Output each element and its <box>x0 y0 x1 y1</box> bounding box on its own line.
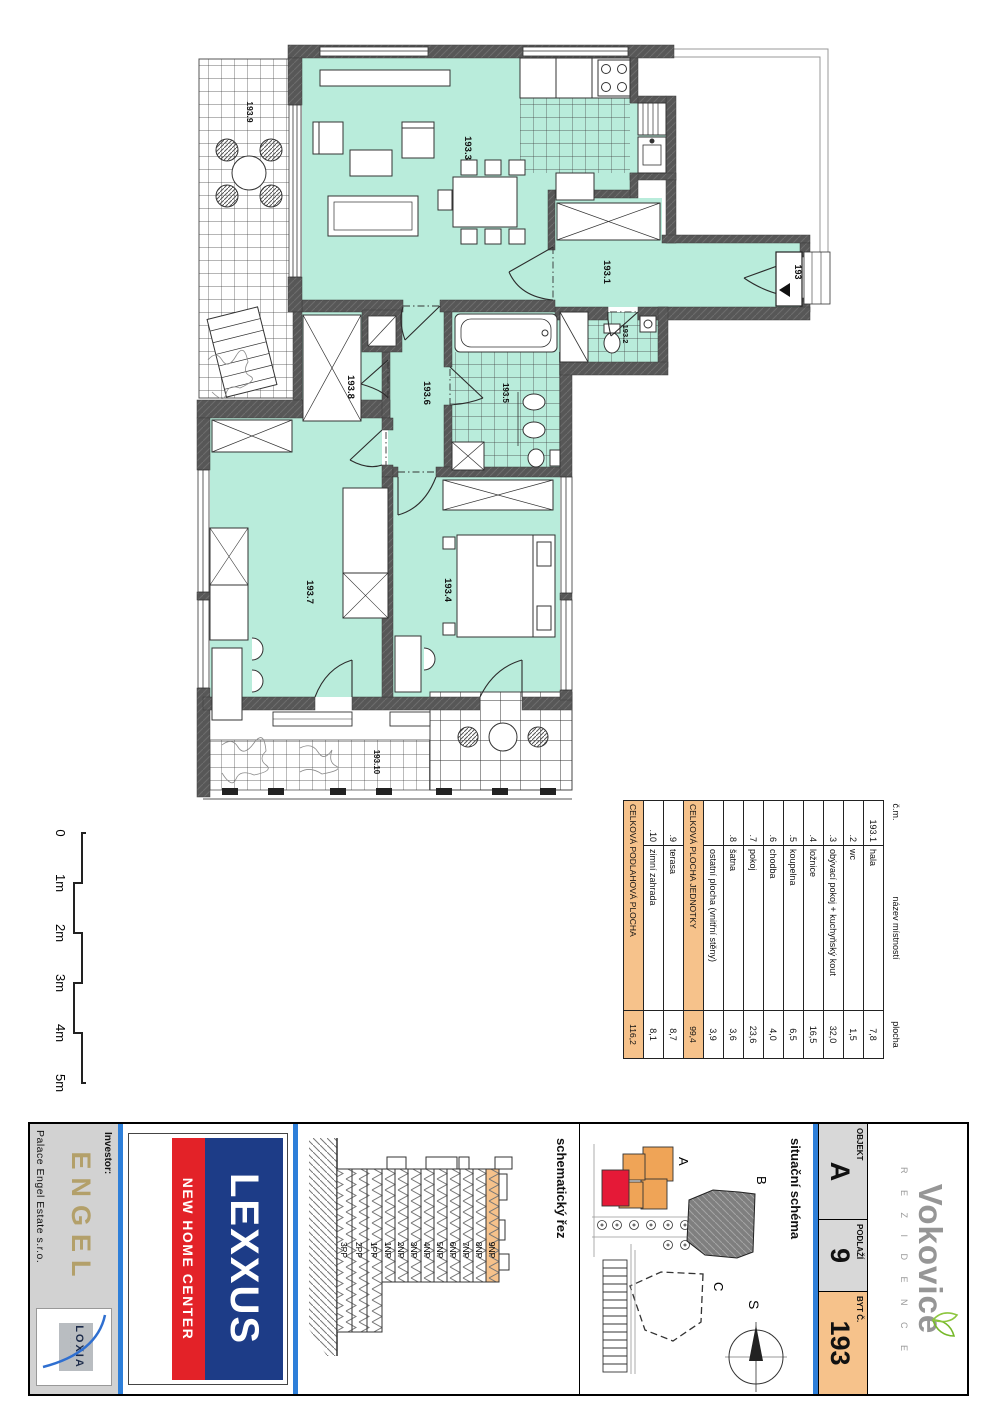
room-label-closet: 193.8 <box>345 375 356 399</box>
table-header-row: č.m. název místností plocha <box>884 801 909 1059</box>
cell-num: .2 <box>844 801 864 846</box>
sink-icon <box>523 422 545 438</box>
room-label-bedroom1: 193.4 <box>442 578 453 602</box>
id-cell-byt: BYT Č. 193 <box>819 1292 867 1394</box>
table-row-total-floor: CELKOVÁ PODLAHOVÁ PLOCHA116,2 <box>624 801 644 1059</box>
hall-wardrobe <box>557 203 660 240</box>
site-scheme-section: situační schéma A <box>580 1124 813 1394</box>
toilet-icon <box>528 449 544 467</box>
building-a-label: A <box>676 1157 691 1166</box>
cell-area: 6,5 <box>784 1011 804 1059</box>
col-header-name: název místností <box>884 846 909 1011</box>
floor-label: 3NP <box>409 1242 419 1259</box>
site-unit-marker <box>602 1170 629 1206</box>
table-row: .5koupelna6,5 <box>784 801 804 1059</box>
lexxus-blank <box>133 1138 172 1380</box>
investor-company: Palace Engel Estate s.r.o. <box>34 1130 46 1263</box>
cell-area: 32,0 <box>824 1011 844 1059</box>
site-stairs <box>603 1244 635 1374</box>
scale-tick-label: 0 <box>53 829 68 836</box>
section-cut-drawing: 9NP 8NP 7NP 6NP 5NP 4NP 3NP 2NP 1NP 1PP … <box>299 1124 579 1394</box>
cell-name: pokoj <box>744 846 764 1011</box>
id-value: 193 <box>824 1292 855 1394</box>
site-trees <box>598 1221 690 1250</box>
room-label-bath: 193.5 <box>501 383 510 404</box>
threshold <box>390 712 430 726</box>
cell-area: 4,0 <box>764 1011 784 1059</box>
cell-name: zimní zahrada <box>644 846 664 1011</box>
id-label: PODLAŽÍ <box>855 1224 864 1259</box>
cell-area: 23,6 <box>744 1011 764 1059</box>
cell-area: 8,1 <box>644 1011 664 1059</box>
cell-name: ostatní plocha (vnitřní stěny) <box>704 846 724 1011</box>
cell-name: šatna <box>724 846 744 1011</box>
investor-block: Investor: ENGEL Palace Engel Estate s.r.… <box>30 1124 118 1394</box>
cell-total-label: CELKOVÁ PLOCHA JEDNOTKY <box>684 801 704 1011</box>
site-scheme-drawing: A B C <box>580 1124 813 1394</box>
floor-label: 8NP <box>474 1242 484 1259</box>
id-cell-objekt: OBJEKT A <box>819 1124 867 1220</box>
room-label-corridor: 193.6 <box>421 381 432 405</box>
room-label-wc: 193.2 <box>621 325 630 344</box>
engel-logo: ENGEL <box>65 1138 96 1298</box>
lexxus-name: LEXXUS <box>205 1138 283 1380</box>
scale-tick-label: 1m <box>53 874 68 892</box>
table-row: .8šatna3,6 <box>724 801 744 1059</box>
table-row: .10zimní zahrada8,1 <box>644 801 664 1059</box>
table-row-total-unit: CELKOVÁ PLOCHA JEDNOTKY99,4 <box>684 801 704 1059</box>
floor-label: 2NP <box>396 1242 406 1259</box>
loxia-swoosh <box>37 1309 111 1385</box>
page: { "plan": { "labels": { "r1": "193.1", "… <box>0 0 999 1414</box>
id-label: BYT Č. <box>855 1296 864 1322</box>
blue-divider <box>813 1124 818 1394</box>
site-building-a <box>602 1147 673 1209</box>
unit-number-label: 193 <box>793 264 803 279</box>
table-row: .4ložnice16,5 <box>804 801 824 1059</box>
id-label: OBJEKT <box>855 1128 864 1160</box>
col-header-area: plocha <box>884 1011 909 1059</box>
cell-name: terasa <box>664 846 684 1011</box>
table-row: ostatní plocha (vnitřní stěny)3,9 <box>704 801 724 1059</box>
floor-label: 3PP <box>339 1242 349 1258</box>
investor-label: Investor: <box>102 1132 113 1174</box>
scale-tick-label: 4m <box>53 1024 68 1042</box>
leaf-icon <box>931 1306 961 1340</box>
table-row: 193.1hala7,8 <box>864 801 884 1059</box>
site-building-c <box>630 1272 703 1341</box>
site-scheme-title: situační schéma <box>788 1138 803 1239</box>
lexxus-logo: LEXXUS NEW HOME CENTER <box>123 1124 293 1394</box>
floor-label: 1PP <box>369 1242 379 1258</box>
cell-area: 116,2 <box>624 1011 644 1059</box>
floor-labels: 9NP 8NP 7NP 6NP 5NP 4NP 3NP 2NP 1NP 1PP … <box>339 1242 497 1259</box>
cell-area: 3,9 <box>704 1011 724 1059</box>
cell-area: 7,8 <box>864 1011 884 1059</box>
patio-table-icon <box>489 723 517 751</box>
site-building-b <box>687 1190 755 1258</box>
loxia-logo: LOXIA· · · · · · · <box>36 1308 112 1386</box>
cell-area: 99,4 <box>684 1011 704 1059</box>
closet-wardrobe <box>303 315 361 421</box>
cell-name: obývací pokoj + kuchyňský kout <box>824 846 844 1011</box>
table-row: .3obývací pokoj + kuchyňský kout32,0 <box>824 801 844 1059</box>
floor-label: 9NP <box>487 1242 497 1259</box>
ground-hatch <box>309 1138 337 1356</box>
sink-icon <box>523 394 545 410</box>
vokovice-logo: Vokovice R E Z I D E N C E <box>867 1124 967 1394</box>
compass-icon <box>725 1322 787 1392</box>
floor-label: 7NP <box>461 1242 471 1259</box>
table-row: .7pokoj23,6 <box>744 801 764 1059</box>
scale-tick-label: 3m <box>53 974 68 992</box>
neighbor-outline <box>674 49 828 252</box>
scale-tick-label: 5m <box>53 1074 68 1092</box>
blue-divider <box>118 1124 123 1394</box>
scale-tick-label: 2m <box>53 924 68 942</box>
floor-label: 2PP <box>354 1242 364 1258</box>
compass-north-label: S <box>746 1300 762 1309</box>
cell-name: koupelna <box>784 846 804 1011</box>
floor-label: 6NP <box>448 1242 458 1259</box>
brand-name: Vokovice <box>911 1124 949 1394</box>
building-c-label: C <box>711 1282 726 1291</box>
brand-subtitle: R E Z I D E N C E <box>899 1131 909 1394</box>
cell-name: wc <box>844 846 864 1011</box>
room-label-wintergarden: 193.10 <box>372 750 381 775</box>
cell-num: 193.1 <box>864 801 884 846</box>
table-row: .2wc1,5 <box>844 801 864 1059</box>
cell-name: hala <box>864 846 884 1011</box>
id-value: A <box>824 1124 855 1219</box>
title-block: Vokovice R E Z I D E N C E OBJEKT A PODL… <box>28 1122 969 1396</box>
id-cell-podlazi: PODLAŽÍ 9 <box>819 1220 867 1292</box>
room-label-terrace: 193.9 <box>245 101 255 123</box>
cell-area: 1,5 <box>844 1011 864 1059</box>
floor-label: 1NP <box>383 1242 393 1259</box>
scale-bar: 0 1m 2m 3m 4m 5m <box>45 828 94 1092</box>
cell-total-label: CELKOVÁ PODLAHOVÁ PLOCHA <box>624 801 644 1011</box>
cell-name: ložnice <box>804 846 824 1011</box>
cell-area: 16,5 <box>804 1011 824 1059</box>
floor-plan: 193 193.3 193.1 193.2 193.5 193.6 193.8 … <box>175 35 845 820</box>
scale-bar-line <box>74 833 86 1083</box>
cell-name: chodba <box>764 846 784 1011</box>
room-label-living: 193.3 <box>462 136 473 160</box>
floor-label: 5NP <box>435 1242 445 1259</box>
building-b-label: B <box>754 1176 769 1185</box>
floor-label: 4NP <box>422 1242 432 1259</box>
col-header-num: č.m. <box>884 801 909 846</box>
section-cut-section: schematický řez <box>298 1124 580 1394</box>
room-label-hall: 193.1 <box>601 260 612 284</box>
cell-area: 8,7 <box>664 1011 684 1059</box>
terrace-table-icon <box>232 156 266 190</box>
cell-area: 3,6 <box>724 1011 744 1059</box>
lexxus-tagline: NEW HOME CENTER <box>172 1138 205 1380</box>
table-row: .9terasa8,7 <box>664 801 684 1059</box>
table-row: .6chodba4,0 <box>764 801 784 1059</box>
id-value: 9 <box>824 1220 855 1291</box>
room-label-bedroom2: 193.7 <box>304 580 315 604</box>
facade-columns <box>222 788 556 795</box>
section-cut-title: schematický řez <box>554 1138 569 1238</box>
sheet-id-row: OBJEKT A PODLAŽÍ 9 BYT Č. 193 <box>818 1124 867 1394</box>
room-area-table: č.m. název místností plocha 193.1hala7,8… <box>623 800 908 1058</box>
